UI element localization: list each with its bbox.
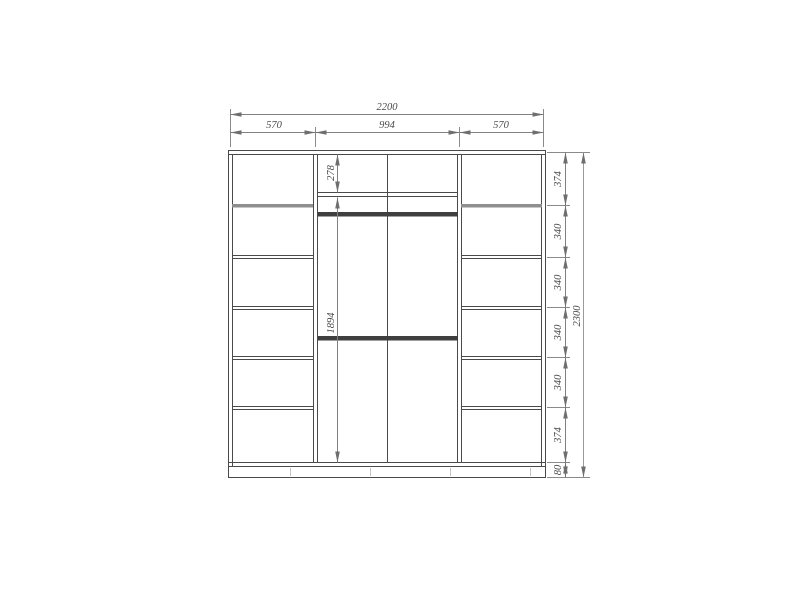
dim-label-plinth-height: 80: [553, 464, 564, 475]
dim-label-overall-width: 2200: [377, 102, 399, 113]
dim-label-middle-section: 994: [379, 120, 396, 131]
lower-hanging-rail: [318, 336, 458, 341]
dim-label-height-5: 340: [553, 374, 564, 392]
dim-label-top-shelf-height: 278: [326, 164, 337, 181]
dim-label-height-2: 340: [553, 223, 564, 241]
right-column-shelves: [461, 206, 542, 410]
technical-drawing-canvas: 2200 570 994 570 374 340 340 340 340 374…: [0, 0, 800, 600]
dim-label-height-1: 374: [553, 170, 564, 188]
dim-label-main-height: 1894: [326, 312, 337, 334]
wardrobe-dimension-drawing: 2200 570 994 570 374 340 340 340 340 374…: [0, 0, 800, 600]
middle-dimensions: 278 1894: [326, 155, 338, 463]
dim-label-height-4: 340: [553, 324, 564, 342]
cabinet-carcass: [228, 150, 546, 478]
top-dimensions: 2200 570 994 570: [231, 102, 544, 147]
dim-label-height-3: 340: [553, 274, 564, 292]
upper-hanging-rail: [318, 212, 458, 217]
right-dimensions: 374 340 340 340 340 374 80 2300: [547, 153, 590, 478]
left-column-shelves: [232, 206, 313, 410]
dim-label-right-section: 570: [493, 120, 510, 131]
dim-label-height-6: 374: [553, 426, 564, 444]
dim-label-left-section: 570: [266, 120, 283, 131]
dim-label-overall-height: 2300: [572, 305, 583, 327]
